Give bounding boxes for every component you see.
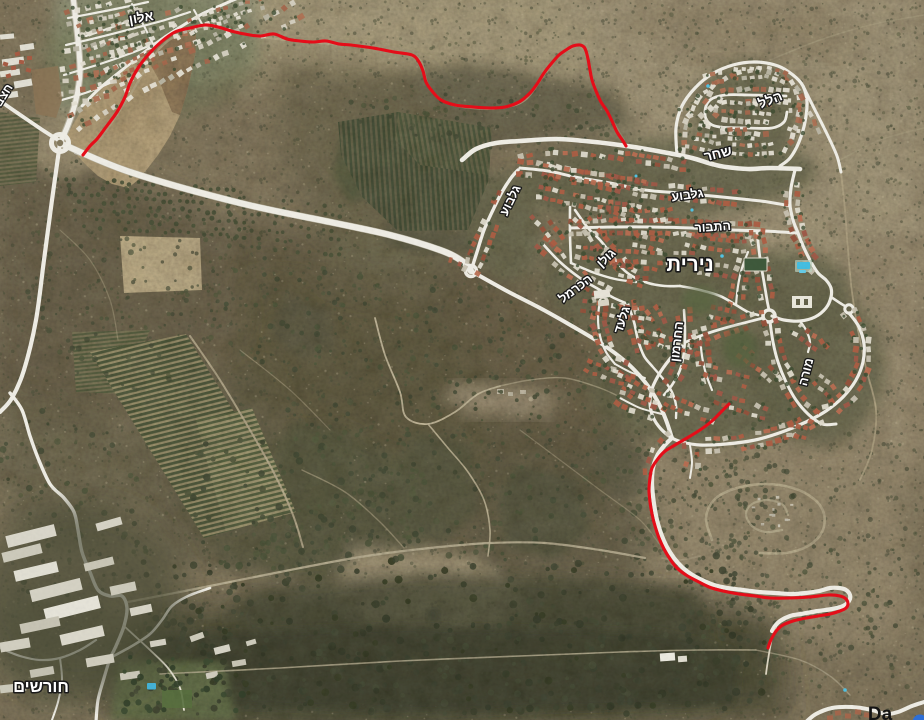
svg-text:Da: Da — [868, 704, 893, 720]
svg-text:חורשים: חורשים — [13, 678, 69, 696]
svg-text:נירית: נירית — [666, 253, 713, 276]
svg-text:התבור: התבור — [694, 219, 731, 236]
